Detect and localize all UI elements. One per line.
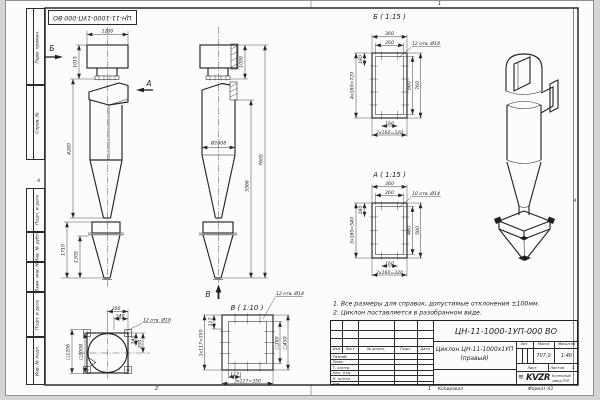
margin-stamp-inv-podl: Инв. № подл. [26, 337, 45, 385]
tb-line [331, 359, 433, 360]
dim-label: 3x180=540 [350, 217, 356, 244]
tb-line [522, 348, 523, 363]
dim-label: 3x117=350 [198, 329, 204, 356]
tb-line [527, 348, 528, 363]
dim-label: 117 [208, 318, 214, 327]
tb-sheet-label: Лист [516, 365, 548, 370]
dim-label: 180 [358, 55, 364, 64]
dim-label: 140 [130, 336, 136, 345]
stamp-label: Инв. № дубл. [35, 232, 40, 262]
holes-note: 12 отв. Ø18 [143, 317, 171, 324]
tb-line [548, 363, 549, 371]
tb-header-doc: № докум. [358, 347, 394, 351]
zone-marker-left: А [37, 179, 40, 184]
tb-header-list: Лист [342, 347, 358, 351]
dim-label: 117 [230, 372, 239, 378]
dim-label: □380 [274, 336, 280, 349]
stamp-label: Перв. примен. [35, 30, 40, 63]
tb-sheets-label: Листов [550, 365, 564, 370]
tb-row-prov: Пров. [333, 359, 344, 364]
detail-view-b: Б ( 1:15 ) 360 260 12 отв. Ø14 180 4x180… [350, 13, 442, 137]
dim-label: □1008 [79, 344, 85, 360]
tb-header-podp: Подп. [394, 347, 417, 351]
dim-label: 360 [385, 31, 394, 37]
dim-label: 1059 [239, 56, 245, 68]
zone-marker-right: А [574, 198, 577, 203]
dim-label: 3x117=350 [234, 378, 261, 384]
tb-doc-number: ЦН-11-1000-1УП-000 ВО [433, 326, 579, 336]
note-line: 1. Все размеры для справок, допустимые о… [333, 301, 540, 308]
dim-label: 140 [116, 314, 125, 320]
tb-line [331, 338, 433, 339]
logo-wave-icon: ≋ [518, 373, 524, 381]
isometric-view [494, 54, 558, 261]
footer-format-label: Формат А3 [528, 387, 553, 392]
detail-view-v: В ( 1:10 ) 12 отв. Ø14 117 3x117=350 □38… [198, 290, 304, 385]
dim-label: 2x160=320 [376, 130, 403, 136]
tb-row-nachotd: Нач. отд. [333, 370, 352, 375]
dim-label: 4x180=720 [350, 72, 356, 99]
detail-title: А ( 1:15 ) [372, 171, 406, 179]
dim-label: 260 [385, 190, 394, 196]
dim-label: 7605 [259, 154, 265, 166]
view-direction-label-a: А [145, 79, 151, 88]
margin-stamp-vzam-inv: Взам. инв. № [26, 262, 45, 292]
dim-label: 1015 [73, 56, 79, 68]
stamp-divider [33, 189, 34, 231]
detail-title: Б ( 1:15 ) [373, 13, 406, 21]
holes-note: 12 отв. Ø14 [412, 40, 440, 47]
tb-line [433, 369, 516, 370]
holes-note: 10 отв. Ø14 [412, 190, 440, 197]
tb-line [331, 330, 433, 331]
dim-label: 200 [137, 340, 143, 349]
tb-sheets-value: 1 [572, 365, 575, 370]
tb-header-izm: Изм [331, 347, 342, 351]
tb-company-line2: завод РЭП [552, 379, 569, 383]
stamp-label: Справ. № [35, 112, 40, 133]
dim-label: 5566 [245, 180, 251, 192]
dim-label: 2x160=320 [376, 270, 403, 276]
footer-copied-label: Копировал [438, 387, 463, 392]
tb-lit-label: Лит. [516, 342, 533, 346]
tb-line [516, 348, 579, 349]
stamp-label: Подп. и дата [35, 300, 40, 330]
view-direction-label-b: Б [49, 44, 54, 53]
dim-label: 200 [112, 306, 121, 312]
company-logo: KVZR [526, 373, 550, 383]
view-direction-label-v: В [205, 290, 210, 299]
dim-label: Ø1008 [210, 140, 226, 147]
doc-number-box-rotated: ЦН-11-1000-1УП-000 ВО [48, 10, 137, 25]
tb-scale-label: Масштаб [554, 342, 579, 346]
margin-stamp-inv-dubl: Инв. № дубл. [26, 232, 45, 262]
stamp-label: Подп. и дата [35, 195, 40, 225]
tb-mass-value: 707,0 [533, 353, 554, 359]
tb-row-razrab: Разраб. [333, 354, 348, 359]
tb-name-line2: (правый) [433, 355, 516, 362]
dim-label: 160 [385, 261, 394, 267]
dim-label: 760 [415, 81, 421, 90]
tb-row-tkontr: Т. контр. [333, 365, 351, 370]
stamp-divider [33, 263, 34, 291]
dim-label: 4280 [67, 143, 73, 155]
zone-marker-bottom-left: 2 [155, 386, 158, 392]
stamp-divider [33, 293, 34, 336]
tb-row-utv: Утв. [333, 381, 341, 386]
stamp-divider [33, 9, 34, 84]
tb-row-nkontr: Н. контр. [333, 376, 352, 381]
side-view: Ø1008 1059 5566 7605 В [199, 27, 268, 299]
tb-mass-label: Масса [533, 342, 554, 346]
margin-stamp-podp-data-1: Подп. и дата [26, 188, 45, 232]
stamp-label: Инв. № подл. [35, 346, 40, 376]
stamp-divider [33, 233, 34, 261]
title-block: Изм Лист № докум. Подп. Дата Разраб. Про… [330, 320, 578, 385]
dim-label: 1710 [61, 244, 67, 256]
notes: 1. Все размеры для справок, допустимые о… [333, 301, 540, 317]
tb-header-data: Дата [417, 347, 433, 351]
tb-scale-value: 1:40 [554, 353, 579, 359]
dim-label: 360 [385, 181, 394, 187]
stamp-label: Взам. инв. № [35, 262, 40, 292]
dim-label: 660 [407, 81, 413, 90]
stamp-divider [33, 86, 34, 159]
note-line: 2. Циклон поставляется в разобранном вид… [333, 309, 482, 317]
dim-label: 260 [385, 40, 394, 46]
dim-label: 1200 [102, 29, 114, 35]
margin-stamp-perv-primen: Перв. примен. [26, 8, 45, 85]
tb-line [331, 381, 433, 382]
drawing-sheet-page: { "colors": {"line":"#262626","sheet":"#… [0, 0, 600, 400]
zone-marker-bottom-right: 1 [428, 386, 431, 392]
dim-label: 480 [407, 226, 413, 235]
holes-note: 12 отв. Ø14 [276, 290, 304, 297]
zone-marker-top: 1 [438, 1, 441, 7]
margin-stamp-podp-data-2: Подп. и дата [26, 292, 45, 337]
detail-view-a: А ( 1:15 ) 360 260 10 отв. Ø14 180 3x180… [350, 171, 442, 277]
front-view: 1200 1015 4280 1710 1305 Б А [45, 27, 153, 288]
stamp-divider [33, 338, 34, 384]
dim-label: 580 [415, 226, 421, 235]
top-view: 200 140 12 отв. Ø18 140 200 □1008 □1206 [66, 306, 171, 380]
margin-stamp-sprav-no: Справ. № [26, 85, 45, 160]
doc-number-rotated: ЦН-11-1000-1УП-000 ВО [53, 14, 132, 21]
dim-label: □1206 [66, 344, 72, 360]
tb-name-line1: Циклон ЦН-11-1000х1УП [433, 346, 516, 353]
dim-label: 160 [385, 121, 394, 127]
detail-title: В ( 1:10 ) [231, 304, 264, 312]
dim-label: 180 [358, 206, 364, 215]
tb-company-line1: Котельный [552, 374, 571, 378]
dim-label: 1305 [74, 251, 80, 263]
dim-label: □450 [282, 336, 288, 349]
